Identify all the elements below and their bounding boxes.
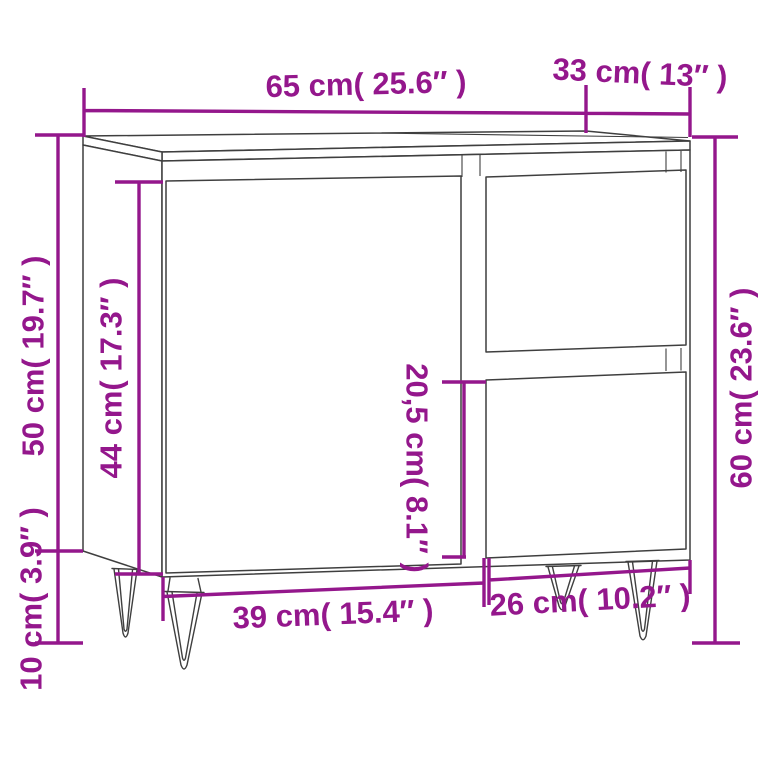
dim-leg-height-10cm: 10 cm( 3.9″ ) (14, 507, 84, 691)
dim-label: 33 cm( 13″ ) (552, 52, 729, 95)
bathroom-cabinet-dimension-diagram: 65 cm( 25.6″ ) 33 cm( 13″ ) 50 cm( 19.7″… (0, 0, 767, 767)
dim-depth-33cm: 33 cm( 13″ ) (552, 52, 729, 137)
dim-label: 50 cm( 19.7″ ) (16, 256, 51, 457)
dim-width-65cm: 65 cm( 25.6″ ) (84, 64, 586, 137)
dim-line (586, 85, 690, 137)
dim-label: 60 cm( 23.6″ ) (724, 288, 759, 489)
dim-label: 39 cm( 15.4″ ) (232, 592, 434, 635)
dim-drawer-width-26cm: 26 cm( 10.2″ ) (489, 558, 692, 623)
drawer-top (486, 170, 686, 352)
drawer-bottom (486, 372, 686, 558)
dim-body-height-50cm: 50 cm( 19.7″ ) (16, 135, 84, 551)
dim-label: 10 cm( 3.9″ ) (14, 507, 49, 691)
dim-label: 44 cm( 17.3″ ) (94, 278, 129, 479)
dim-label: 65 cm( 25.6″ ) (265, 64, 467, 104)
hairpin-leg-back-left (112, 569, 139, 638)
dim-label: 26 cm( 10.2″ ) (489, 577, 692, 622)
hairpin-leg-front-left (165, 578, 204, 669)
dimension-diagram-page: 65 cm( 25.6″ ) 33 cm( 13″ ) 50 cm( 19.7″… (0, 0, 767, 767)
dim-total-height-60cm: 60 cm( 23.6″ ) (692, 137, 759, 643)
dim-label: 20,5 cm( 8.1″ ) (400, 363, 435, 573)
